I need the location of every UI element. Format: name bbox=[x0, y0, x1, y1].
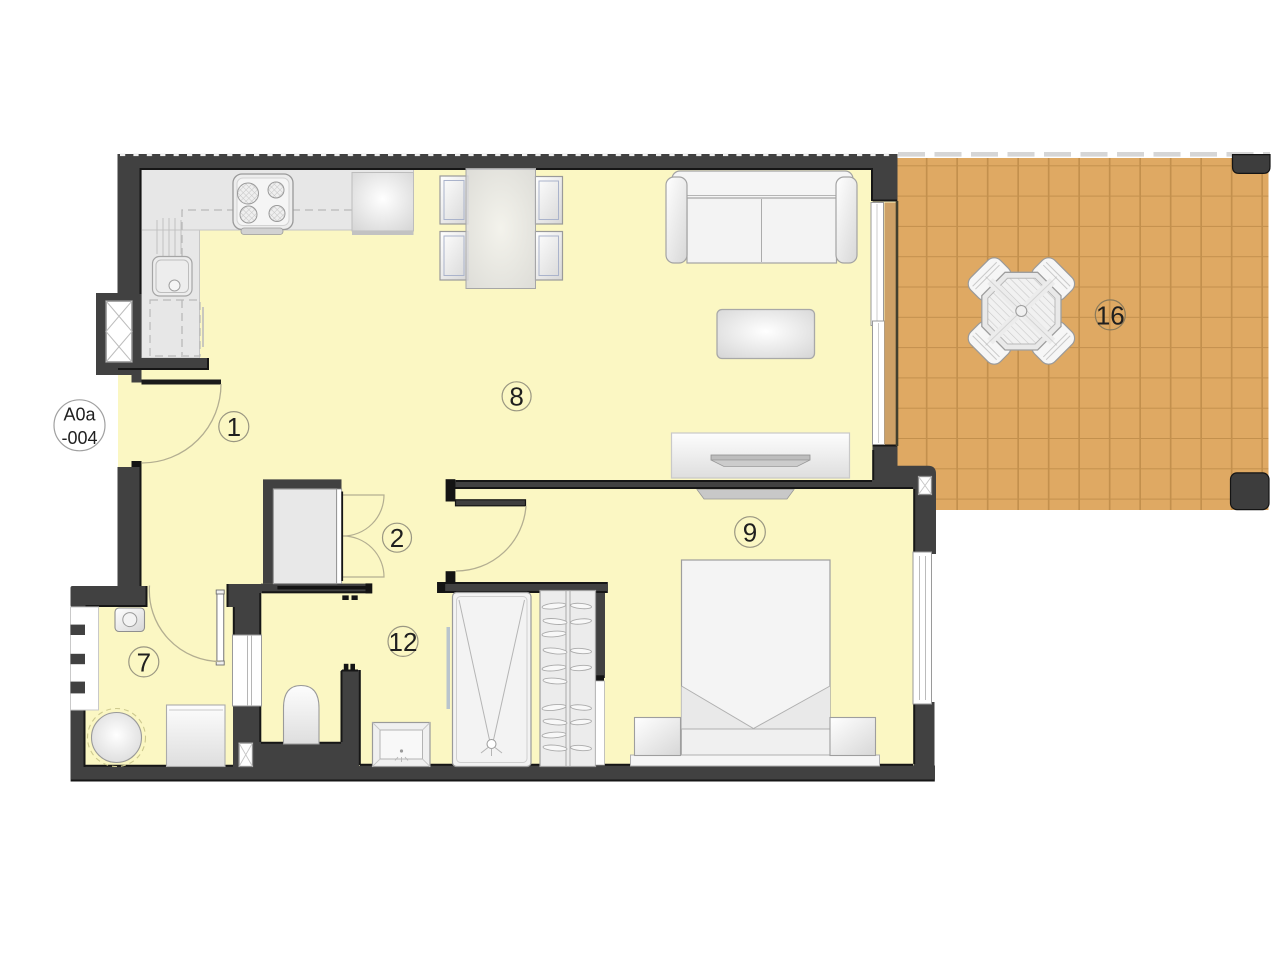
svg-text:7: 7 bbox=[137, 647, 151, 677]
svg-text:2: 2 bbox=[390, 523, 404, 553]
svg-text:A0a: A0a bbox=[63, 405, 96, 425]
svg-text:16: 16 bbox=[1096, 300, 1125, 330]
svg-text:-004: -004 bbox=[61, 428, 97, 448]
svg-text:8: 8 bbox=[509, 382, 523, 412]
svg-text:9: 9 bbox=[743, 517, 757, 547]
svg-text:1: 1 bbox=[227, 412, 241, 442]
svg-text:12: 12 bbox=[389, 627, 418, 657]
